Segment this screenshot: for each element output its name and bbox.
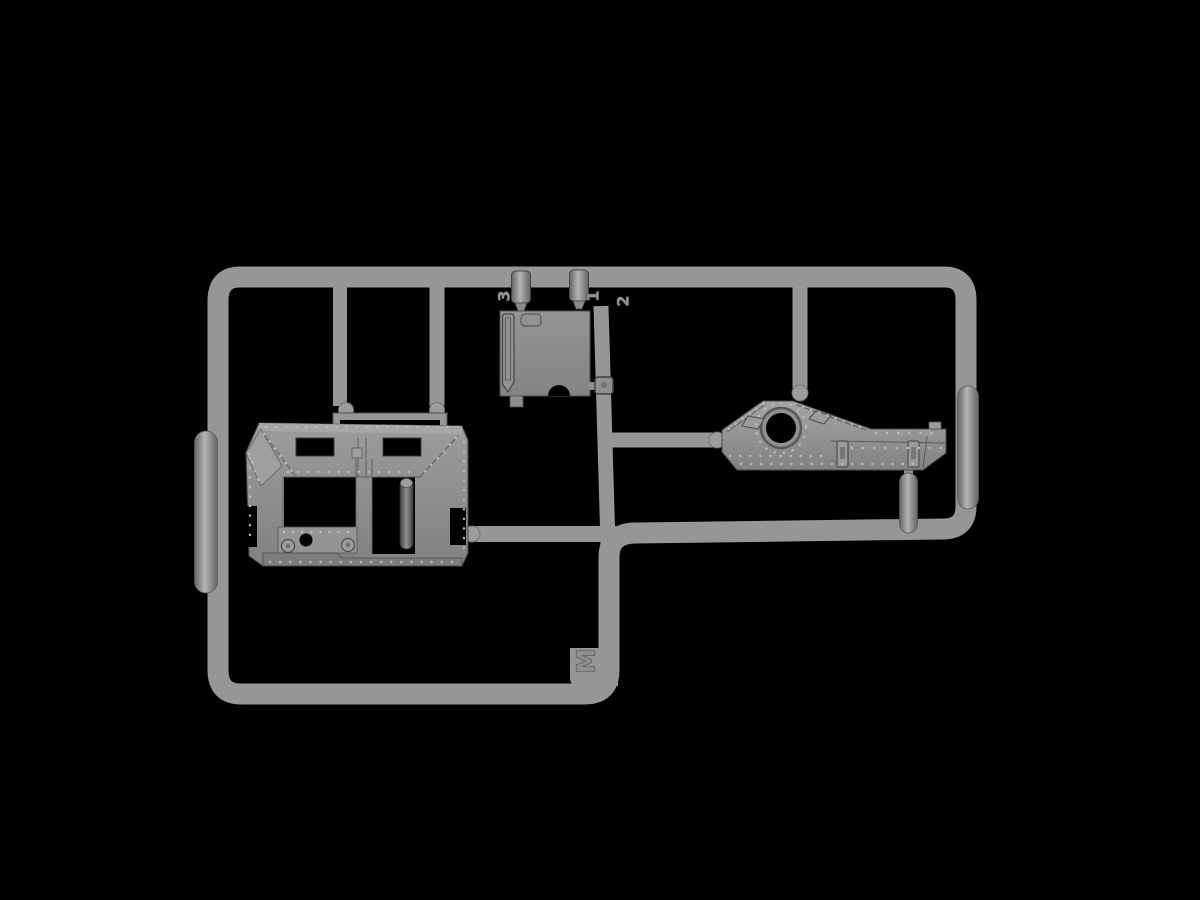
plate-pin-dot	[601, 382, 607, 388]
part-number-2-label: 2	[614, 295, 633, 306]
hull-shell-window-right	[383, 438, 421, 456]
hull-roof-bump	[929, 422, 941, 429]
hull-shell-boss-square	[352, 448, 362, 458]
part-hull-shell	[246, 413, 468, 566]
hull-roof-latch-slot	[911, 447, 916, 459]
hull-roof-bump	[924, 430, 931, 436]
rail-vertical-c	[601, 306, 608, 545]
barrel-cap	[401, 479, 413, 488]
hull-shell-hinge-boss-dot	[286, 544, 290, 548]
hull-roof-latch-slot	[840, 447, 845, 459]
part-number-3-label: 3	[495, 290, 514, 301]
gate-knob	[792, 385, 808, 401]
hull-shell-notch-right	[450, 508, 466, 545]
hull-shell-hinge-boss-dot	[346, 543, 350, 547]
sprue-render: 3 1 2 M	[0, 0, 1200, 900]
hull-shell-opening-left	[284, 477, 356, 529]
part-rod-left	[195, 431, 218, 593]
render-canvas: 3 1 2 M	[0, 0, 1200, 900]
sprue-letter-label: M	[572, 649, 601, 674]
hull-shell-window-left	[296, 438, 334, 456]
hull-shell-hole	[300, 534, 313, 547]
plate-tab	[510, 396, 523, 407]
part-number-1-label: 1	[584, 290, 603, 301]
hull-shell-slot-left	[246, 506, 257, 547]
turret-ring-opening	[766, 413, 796, 443]
part-small-cylinder	[900, 473, 918, 533]
part-rod-right	[958, 386, 979, 509]
part-barrel-in-opening	[400, 479, 413, 549]
